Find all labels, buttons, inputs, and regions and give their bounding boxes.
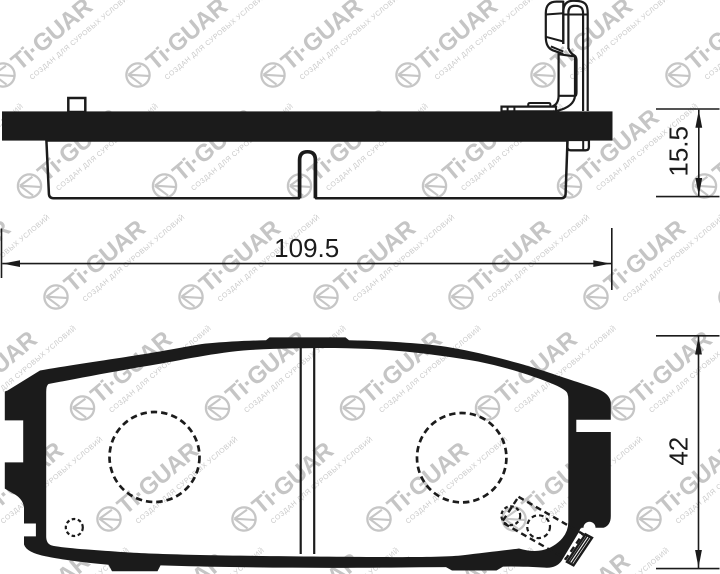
svg-text:15.5: 15.5 bbox=[664, 126, 694, 177]
svg-text:42: 42 bbox=[664, 437, 694, 466]
svg-text:109.5: 109.5 bbox=[274, 233, 339, 263]
